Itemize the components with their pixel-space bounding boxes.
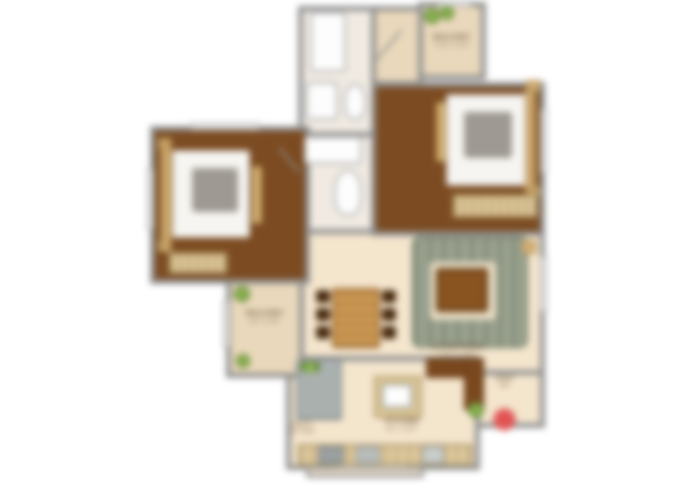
room-name: UTILITY (282, 422, 322, 429)
dining-chair (382, 290, 396, 303)
window-living (540, 256, 547, 312)
room-name: BALCONY (420, 34, 484, 43)
window-bedroom-left-top (190, 123, 260, 130)
plant-living (468, 402, 484, 418)
label-utility: UTILITY 3'0" X 4'0" (282, 422, 322, 436)
plant-kitchen-shelf (300, 362, 320, 372)
room-name: LIVING ROOM (422, 344, 494, 353)
plant-balcony-top (424, 8, 440, 24)
bed-left-pillows (192, 168, 238, 212)
label-living: LIVING ROOM 11'6" X 15'0" (422, 344, 494, 360)
dining-chair (316, 290, 330, 303)
room-dims: 8'0" X 8'6" (368, 427, 436, 435)
bed-right-pillows (464, 112, 512, 158)
side-table (522, 240, 536, 254)
label-kitchen: KITCHEN 8'0" X 8'6" (368, 418, 436, 434)
toilet-middle (334, 170, 362, 216)
stove (318, 446, 344, 464)
bed-headboard-left (160, 142, 172, 246)
red-logo-dot (494, 409, 515, 430)
window-bedroom-left (147, 168, 154, 230)
bed-right-foot-bench (436, 102, 446, 162)
label-balcony-left: BALCONY 4'0" X 9'6" (234, 310, 296, 326)
wardrobe-left (168, 252, 228, 274)
bed-left-foot-bench (252, 166, 262, 224)
room-dims: 7'10" X 4'0" (420, 43, 484, 51)
room-passage-top (371, 6, 423, 86)
washbasin-top (306, 82, 338, 120)
dining-chair (316, 308, 330, 321)
room-dims: 4'0" (488, 383, 522, 390)
dining-chair (382, 326, 396, 339)
dining-chair (382, 308, 396, 321)
room-name: BALCONY (234, 310, 296, 319)
window-balcony-left (223, 300, 230, 348)
counter-appliance (356, 446, 380, 464)
counter-sink-basin (422, 446, 444, 464)
window-bedroom-right (540, 108, 547, 174)
label-balcony-top: BALCONY 7'10" X 4'0" (420, 34, 484, 50)
wardrobe-right (452, 194, 538, 218)
coffee-table-rug (436, 268, 488, 312)
kitchen-sink (382, 384, 412, 408)
plant-balcony-left (236, 354, 250, 368)
room-dims: 3'0" X 4'0" (282, 429, 322, 436)
plant-balcony-top (440, 6, 454, 20)
dining-table (332, 288, 380, 348)
room-dims: 11'6" X 15'0" (422, 353, 494, 361)
room-name: ENTRY (488, 376, 522, 383)
floor-plan-canvas: BALCONY 7'10" X 4'0" BALCONY 4'0" X 9'6"… (0, 0, 700, 488)
dining-chair (316, 326, 330, 339)
toilet-top (344, 84, 366, 120)
vanity-counter-middle (304, 136, 362, 164)
label-entry: ENTRY 4'0" (488, 376, 522, 390)
apartment-floor-plan: BALCONY 7'10" X 4'0" BALCONY 4'0" X 9'6"… (0, 0, 700, 488)
plant-balcony-left (234, 286, 250, 302)
shower-enclosure (310, 12, 346, 72)
room-name: KITCHEN (368, 418, 436, 427)
room-dims: 4'0" X 9'6" (234, 319, 296, 327)
